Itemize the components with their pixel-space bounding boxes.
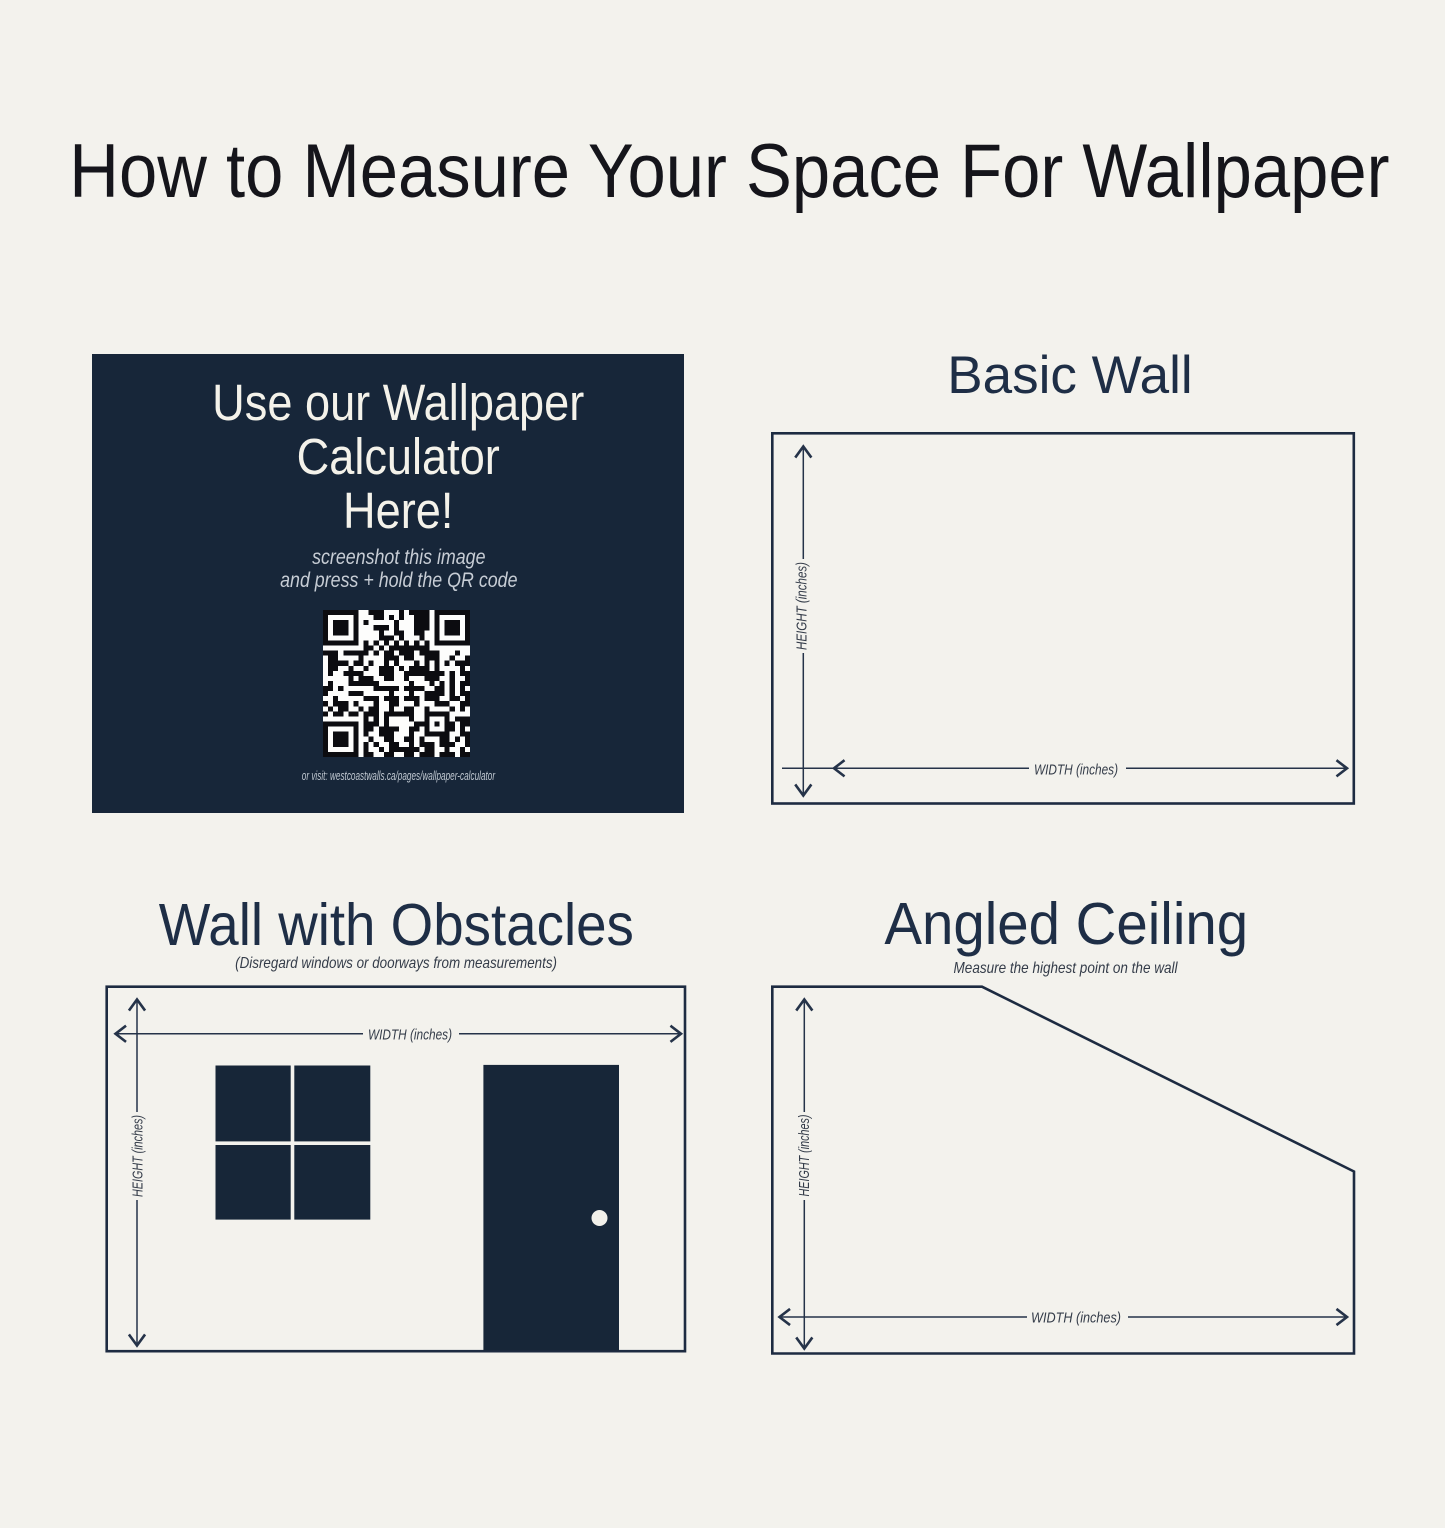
svg-text:HEIGHT (inches): HEIGHT (inches) (796, 1114, 813, 1196)
svg-text:WIDTH (inches): WIDTH (inches) (1031, 1310, 1121, 1327)
svg-text:WIDTH (inches): WIDTH (inches) (368, 1027, 452, 1044)
svg-text:WIDTH (inches): WIDTH (inches) (1034, 761, 1118, 778)
svg-text:HEIGHT (inches): HEIGHT (inches) (794, 562, 811, 650)
svg-text:HEIGHT (inches): HEIGHT (inches) (129, 1115, 146, 1197)
